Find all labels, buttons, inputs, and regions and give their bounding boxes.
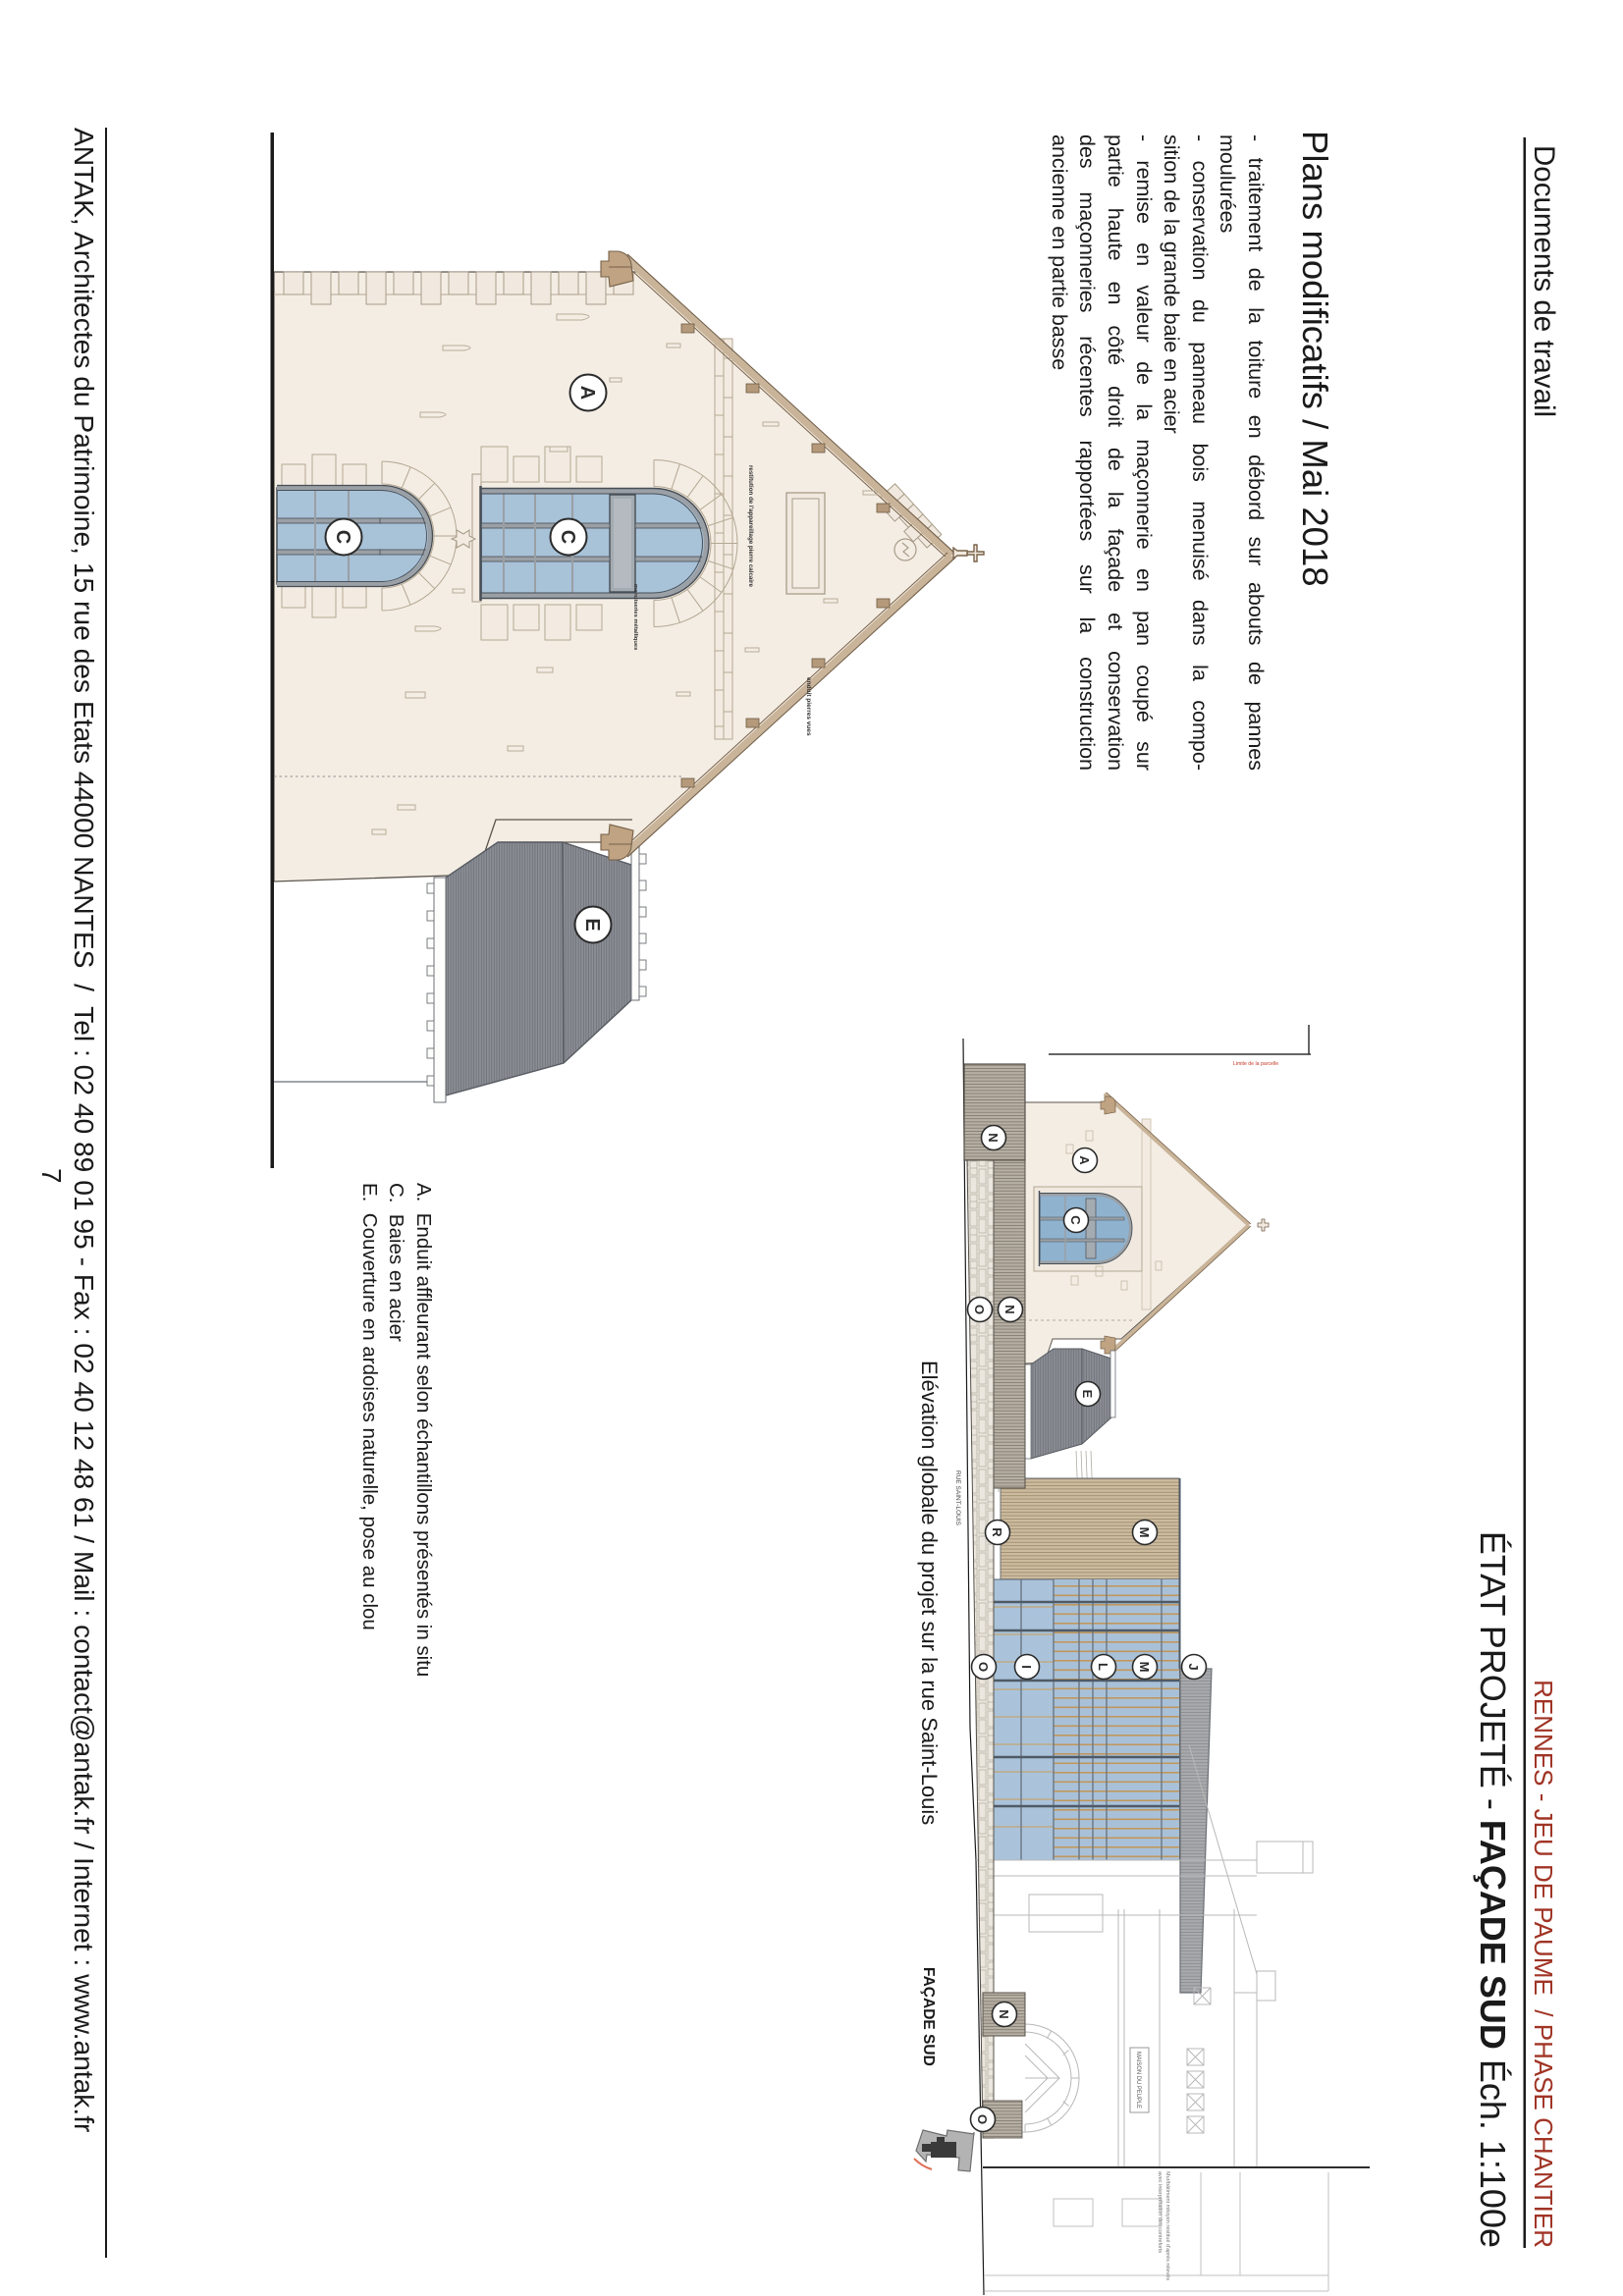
svg-text:E: E [581, 918, 603, 931]
svg-text:N: N [997, 2009, 1011, 2018]
svg-text:R: R [990, 1527, 1004, 1537]
svg-text:Limite de la parcelle: Limite de la parcelle [1233, 1061, 1278, 1067]
svg-text:N: N [1002, 1305, 1017, 1313]
svg-text:O: O [976, 1662, 991, 1672]
svg-text:I: I [1019, 1665, 1034, 1669]
svg-text:O: O [975, 2114, 990, 2124]
svg-text:Mur/bâtiment mitoyen restitué: Mur/bâtiment mitoyen restitué d'après re… [1164, 2171, 1170, 2280]
svg-text:RUE SAINT-LOUIS: RUE SAINT-LOUIS [954, 1470, 961, 1526]
svg-text:avec interprétation des contre: avec interprétation des contreforts [1157, 2171, 1163, 2253]
svg-text:L: L [1096, 1663, 1110, 1671]
svg-text:C: C [1068, 1215, 1083, 1225]
svg-text:N: N [986, 1133, 1001, 1142]
svg-text:E: E [1080, 1390, 1095, 1399]
svg-text:enduit pierres vues: enduit pierres vues [805, 677, 812, 736]
svg-text:M: M [1137, 1527, 1152, 1538]
svg-text:M: M [1137, 1662, 1152, 1673]
svg-text:A: A [576, 386, 598, 400]
svg-text:C: C [332, 530, 353, 544]
svg-text:J: J [1186, 1663, 1201, 1670]
svg-text:restitution de l'appareillage: restitution de l'appareillage pierre cal… [747, 465, 754, 587]
svg-text:A: A [1077, 1155, 1092, 1165]
svg-text:MAISON DU PEUPLE: MAISON DU PEUPLE [1135, 2052, 1141, 2109]
svg-text:C: C [557, 530, 578, 544]
svg-text:O: O [972, 1305, 987, 1314]
svg-text:menuiseries métalliques: menuiseries métalliques [632, 584, 638, 650]
